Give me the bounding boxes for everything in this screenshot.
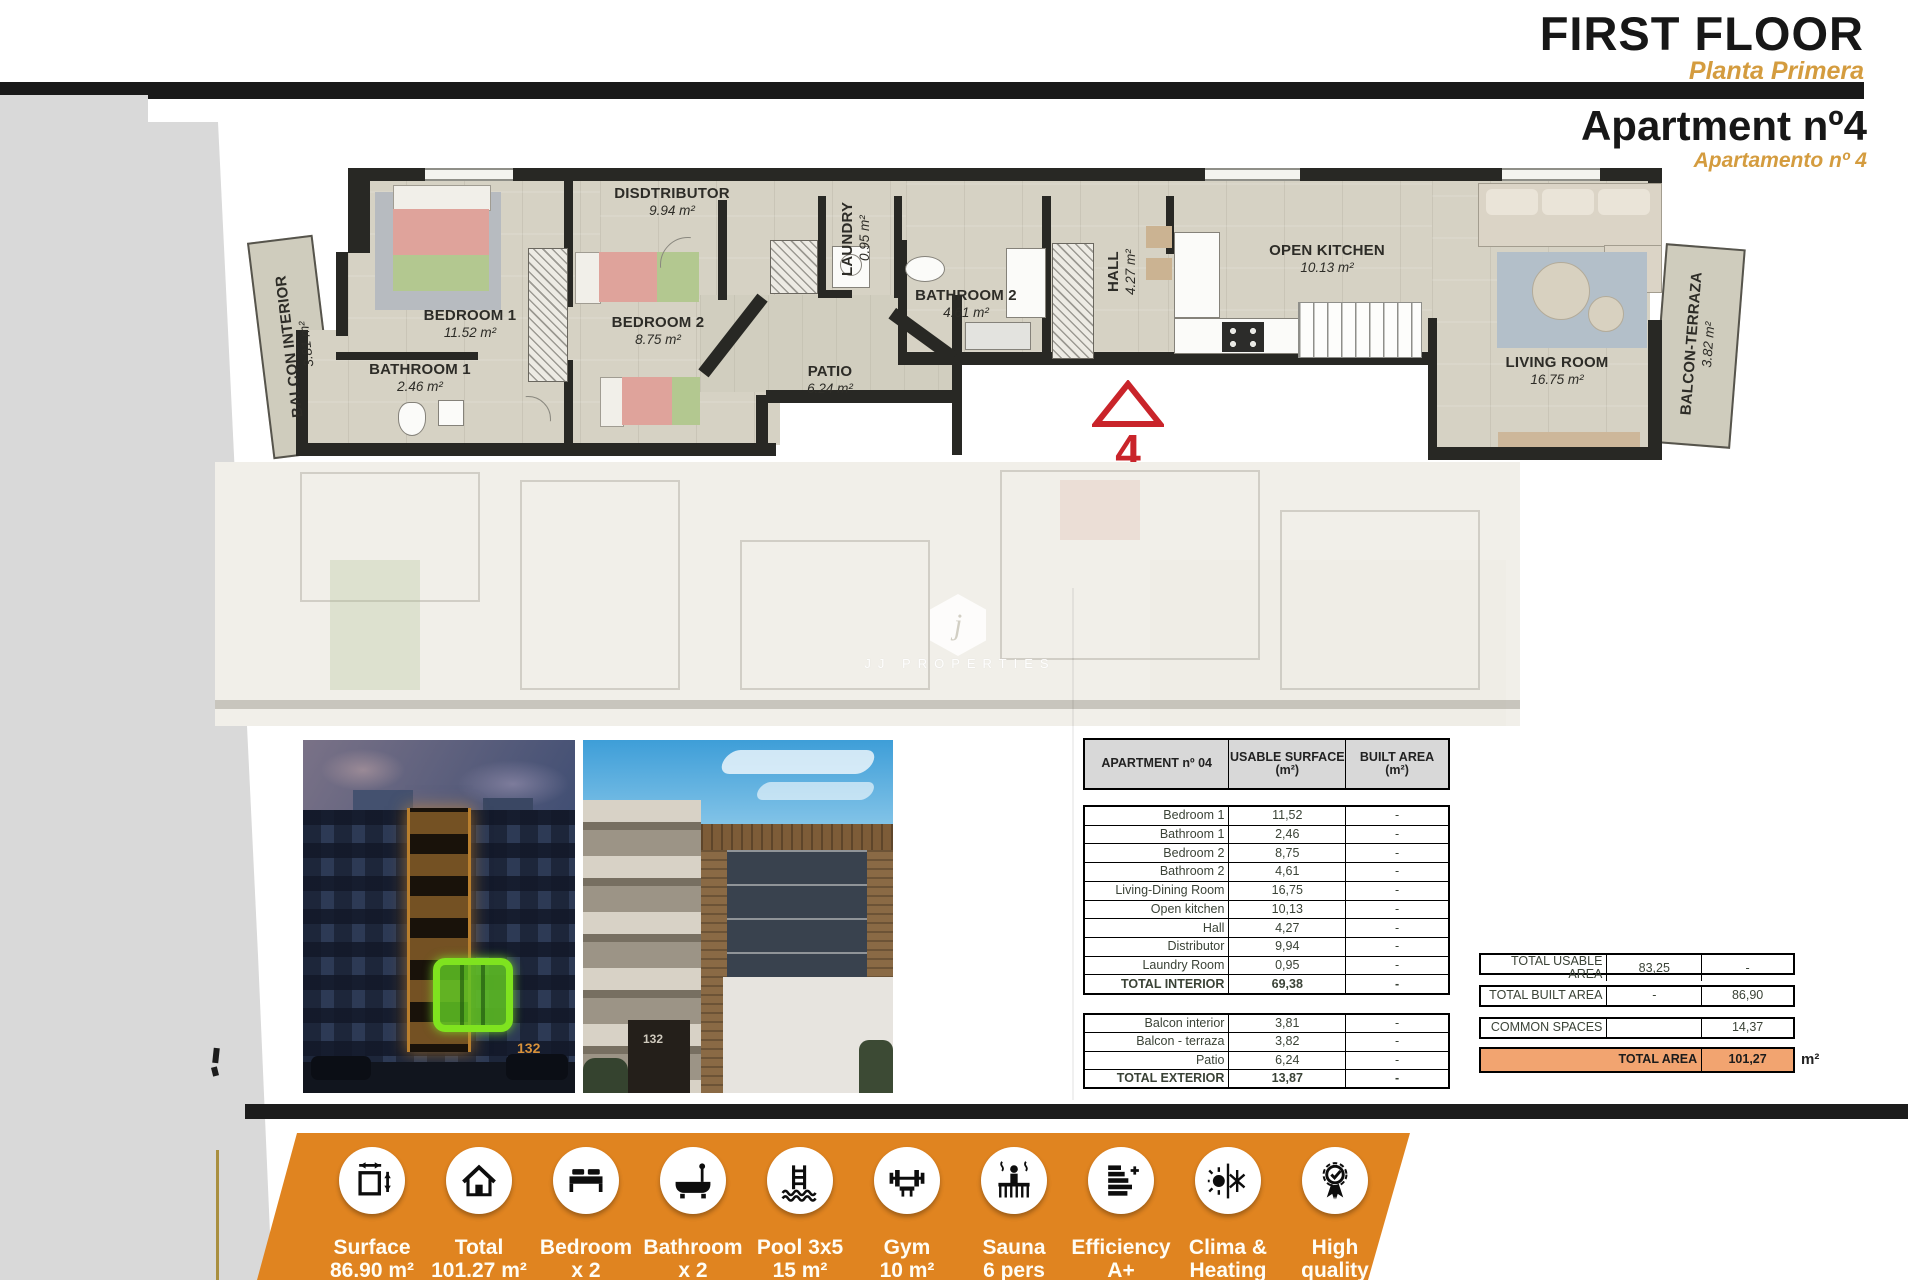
room-name: OPEN KITCHEN (1237, 243, 1417, 260)
street-number: 132 (643, 1032, 663, 1046)
plan-wall (336, 352, 478, 360)
room-label-bedroom2: BEDROOM 28.75 m² (568, 315, 748, 347)
room-area: 0.95 m² (857, 181, 872, 296)
room-name: BEDROOM 2 (568, 315, 748, 332)
room-name: PATIO (740, 364, 920, 381)
summary-built-value: - (1702, 955, 1793, 981)
room-name: LAUNDRY (840, 181, 857, 296)
header-built-area: BUILT AREA(m²) (1346, 740, 1448, 788)
summary-row: TOTAL USABLE AREA83,25- (1479, 953, 1795, 975)
bedroom2-bed-blanket (672, 377, 700, 425)
sofa-cushion (1598, 189, 1650, 215)
row-label: Distributor (1085, 938, 1229, 956)
bedroom2-bed-blanket (599, 252, 657, 302)
bottom-divider-bar (245, 1104, 1908, 1119)
ghost-room (1280, 510, 1480, 690)
cloud (717, 750, 878, 774)
summary-usable-value: - (1607, 987, 1702, 1005)
unit-marker-triangle (1092, 380, 1164, 428)
table-row: Patio6,24- (1085, 1052, 1448, 1070)
bathroom-icon (660, 1147, 726, 1214)
watermark-letter: j (954, 608, 962, 642)
ghost-bed (1060, 480, 1140, 540)
area-table-header: APARTMENT nº 04USABLE SURFACE(m²)BUILT A… (1083, 738, 1450, 790)
summary-row-inner: TOTAL USABLE AREA83,25- (1481, 955, 1793, 981)
brochure-page: FIRST FLOOR Planta Primera Apartment nº4… (0, 0, 1920, 1280)
summary-row: TOTAL BUILT AREA-86,90 (1479, 985, 1795, 1007)
room-name: DISDTRIBUTOR (582, 186, 762, 203)
row-usable-value: 13,87 (1229, 1070, 1346, 1087)
row-built-value: - (1346, 1015, 1448, 1032)
room-area: 10.13 m² (1237, 260, 1417, 275)
efficiency-icon (1088, 1147, 1154, 1214)
row-built-value: - (1346, 863, 1448, 881)
room-label-living: LIVING ROOM16.75 m² (1467, 355, 1647, 387)
room-label-distributor: DISDTRIBUTOR9.94 m² (582, 186, 762, 218)
row-usable-value: 9,94 (1229, 938, 1346, 956)
row-built-value: - (1346, 957, 1448, 975)
summary-row: COMMON SPACES14,37 (1479, 1017, 1795, 1039)
stove (1222, 322, 1264, 352)
apartment-title: Apartment nº4 (1581, 102, 1867, 150)
pouf (1532, 262, 1590, 320)
bush (583, 1058, 628, 1093)
bedroom1-bed-blanket (393, 255, 489, 291)
page-title: FIRST FLOOR (1540, 6, 1864, 61)
surface-icon (339, 1147, 405, 1214)
table-header-row: APARTMENT nº 04USABLE SURFACE(m²)BUILT A… (1085, 740, 1448, 788)
parked-car (311, 1056, 371, 1080)
room-area: 16.75 m² (1467, 372, 1647, 387)
quality-icon (1302, 1147, 1368, 1214)
gym-icon (874, 1147, 940, 1214)
room-area: 2.46 m² (330, 379, 510, 394)
room-label-bedroom1: BEDROOM 111.52 m² (380, 308, 560, 340)
row-usable-value: 4,27 (1229, 919, 1346, 937)
bedroom-icon (553, 1147, 619, 1214)
shower (965, 322, 1031, 350)
media-bench (1498, 432, 1640, 447)
sofa-cushion (1486, 189, 1538, 215)
summary-usable-value: 83,25 (1607, 955, 1702, 981)
table-row: Laundry Room0,95- (1085, 957, 1448, 976)
summary-label: COMMON SPACES (1481, 1019, 1607, 1037)
day-building-photo: 132 (583, 740, 893, 1093)
row-built-value: - (1346, 844, 1448, 862)
row-usable-value: 10,13 (1229, 901, 1346, 919)
plan-wall (1428, 447, 1662, 460)
room-name: BATHROOM 2 (876, 288, 1056, 305)
row-built-value: - (1346, 938, 1448, 956)
fold-line (216, 1150, 219, 1280)
wood-cornice (701, 824, 893, 850)
top-divider-bar (0, 82, 1864, 99)
row-built-value: - (1346, 1052, 1448, 1069)
parked-car (506, 1054, 568, 1080)
table-row: Bathroom 12,46- (1085, 826, 1448, 845)
features-banner: Surface86.90 m²Total101.27 m²Bedroomx 2B… (240, 1125, 1660, 1280)
row-label: Bedroom 2 (1085, 844, 1229, 862)
row-label: Open kitchen (1085, 901, 1229, 919)
room-area: 11.52 m² (380, 325, 560, 340)
row-usable-value: 2,46 (1229, 826, 1346, 844)
climate-icon (1195, 1147, 1261, 1214)
room-label-kitchen: OPEN KITCHEN10.13 m² (1237, 243, 1417, 275)
total-icon (446, 1147, 512, 1214)
feature-quality: Highquality (1270, 1147, 1400, 1280)
room-area: 9.94 m² (582, 203, 762, 218)
row-built-value: - (1346, 975, 1448, 993)
row-label: Hall (1085, 919, 1229, 937)
summary-row-inner: TOTAL AREA101,27 (1481, 1049, 1793, 1071)
feature-label: High (1270, 1236, 1400, 1259)
table-row: Distributor9,94- (1085, 938, 1448, 957)
room-area: 4.27 m² (1123, 217, 1138, 327)
table-row: TOTAL EXTERIOR13,87- (1085, 1070, 1448, 1087)
ghost-bed (330, 560, 420, 690)
row-usable-value: 11,52 (1229, 807, 1346, 825)
row-label: Balcon interior (1085, 1015, 1229, 1032)
row-label: Patio (1085, 1052, 1229, 1069)
cloud (754, 782, 877, 800)
row-built-value: - (1346, 882, 1448, 900)
table-row: TOTAL INTERIOR69,38- (1085, 975, 1448, 993)
row-label: TOTAL INTERIOR (1085, 975, 1229, 993)
summary-built-value: 86,90 (1702, 987, 1793, 1005)
sauna-icon (981, 1147, 1047, 1214)
table-row: Living-Dining Room16,75- (1085, 882, 1448, 901)
room-name: LIVING ROOM (1467, 355, 1647, 372)
apartment-highlight-box (433, 958, 513, 1032)
room-name: BEDROOM 1 (380, 308, 560, 325)
hall-stool (1146, 226, 1172, 248)
summary-row-inner: COMMON SPACES14,37 (1481, 1019, 1793, 1037)
row-built-value: - (1346, 1070, 1448, 1087)
ghost-wall (215, 700, 1520, 709)
room-label-patio: PATIO6.24 m² (740, 364, 920, 396)
sink (438, 400, 464, 426)
stairs (1298, 302, 1422, 358)
summary-usable-value (1607, 1019, 1702, 1037)
summary-label: TOTAL BUILT AREA (1481, 987, 1607, 1005)
bush (859, 1040, 893, 1093)
wardrobe (770, 240, 818, 294)
row-label: Bathroom 1 (1085, 826, 1229, 844)
table-row: Hall4,27- (1085, 919, 1448, 938)
page-crease (1072, 588, 1074, 1100)
row-usable-value: 8,75 (1229, 844, 1346, 862)
plan-wall (348, 168, 1660, 181)
table-row: Bedroom 28,75- (1085, 844, 1448, 863)
table-row: Balcon interior3,81- (1085, 1015, 1448, 1033)
room-name: BATHROOM 1 (330, 362, 510, 379)
plan-wall (756, 395, 768, 447)
row-usable-value: 69,38 (1229, 975, 1346, 993)
row-built-value: - (1346, 826, 1448, 844)
row-built-value: - (1346, 901, 1448, 919)
plan-wall (1648, 320, 1662, 449)
plan-window (425, 168, 513, 181)
sofa-cushion (1542, 189, 1594, 215)
summary-value: 101,27 (1702, 1049, 1793, 1071)
row-usable-value: 3,81 (1229, 1015, 1346, 1032)
apartment-subtitle: Apartamento nº 4 (1694, 149, 1867, 173)
room-label-bathroom1: BATHROOM 12.46 m² (330, 362, 510, 394)
summary-row-inner: TOTAL BUILT AREA-86,90 (1481, 987, 1793, 1005)
summary-label: TOTAL USABLE AREA (1481, 955, 1607, 981)
bedroom1-bed-pillow (393, 185, 491, 211)
summary-built-value: 14,37 (1702, 1019, 1793, 1037)
row-label: Bathroom 2 (1085, 863, 1229, 881)
room-area: 6.24 m² (740, 381, 920, 396)
row-label: Living-Dining Room (1085, 882, 1229, 900)
pouf (1588, 296, 1624, 332)
table-row: Open kitchen10,13- (1085, 901, 1448, 920)
row-usable-value: 4,61 (1229, 863, 1346, 881)
room-label-laundry: LAUNDRY0.95 m² (840, 181, 872, 296)
plan-wall (1428, 318, 1437, 449)
table-row: Bathroom 24,61- (1085, 863, 1448, 882)
bedroom2-bed-pillow (600, 377, 624, 427)
room-area: 8.75 m² (568, 332, 748, 347)
kitchen-tall-unit (1174, 232, 1220, 318)
entrance-door (628, 1020, 690, 1093)
area-table-interior: Bedroom 111,52-Bathroom 12,46-Bedroom 28… (1083, 805, 1450, 995)
toilet (398, 402, 426, 436)
plan-window (1502, 168, 1600, 181)
summary-row: TOTAL AREA101,27 (1479, 1047, 1795, 1073)
room-label-bathroom2: BATHROOM 24.61 m² (876, 288, 1056, 320)
plan-window (1205, 168, 1300, 181)
area-table-exterior: Balcon interior3,81-Balcon - terraza3,82… (1083, 1013, 1450, 1089)
row-label: TOTAL EXTERIOR (1085, 1070, 1229, 1087)
bedroom2-bed-pillow (575, 252, 601, 304)
bedroom1-bed-blanket (393, 209, 489, 255)
plan-wall (296, 443, 776, 456)
row-built-value: - (1346, 807, 1448, 825)
room-name: HALL (1106, 217, 1123, 327)
bedroom2-bed-blanket (622, 377, 672, 425)
row-built-value: - (1346, 1033, 1448, 1050)
toilet (905, 256, 945, 282)
total-area-unit: m² (1801, 1051, 1819, 1068)
summary-label: TOTAL AREA (1481, 1049, 1702, 1071)
wardrobe (1052, 243, 1094, 359)
row-usable-value: 0,95 (1229, 957, 1346, 975)
plan-wall (336, 252, 348, 336)
header-apartment: APARTMENT nº 04 (1085, 740, 1229, 788)
header-usable-surface: USABLE SURFACE(m²) (1229, 740, 1346, 788)
row-label: Bedroom 1 (1085, 807, 1229, 825)
row-built-value: - (1346, 919, 1448, 937)
ghost-room (520, 480, 680, 690)
row-usable-value: 3,82 (1229, 1033, 1346, 1050)
hall-stool (1146, 258, 1172, 280)
pool-icon (767, 1147, 833, 1214)
plan-wall (818, 196, 826, 298)
table-row: Balcon - terraza3,82- (1085, 1033, 1448, 1051)
row-usable-value: 6,24 (1229, 1052, 1346, 1069)
room-label-hall: HALL4.27 m² (1106, 217, 1138, 327)
room-area: 4.61 m² (876, 305, 1056, 320)
feature-value: quality (1270, 1259, 1400, 1280)
plan-wall (348, 181, 370, 253)
row-label: Laundry Room (1085, 957, 1229, 975)
row-usable-value: 16,75 (1229, 882, 1346, 900)
watermark-text: JJ PROPERTIES (810, 656, 1110, 671)
row-label: Balcon - terraza (1085, 1033, 1229, 1050)
table-row: Bedroom 111,52- (1085, 807, 1448, 826)
night-building-photo: 132 (303, 740, 575, 1093)
